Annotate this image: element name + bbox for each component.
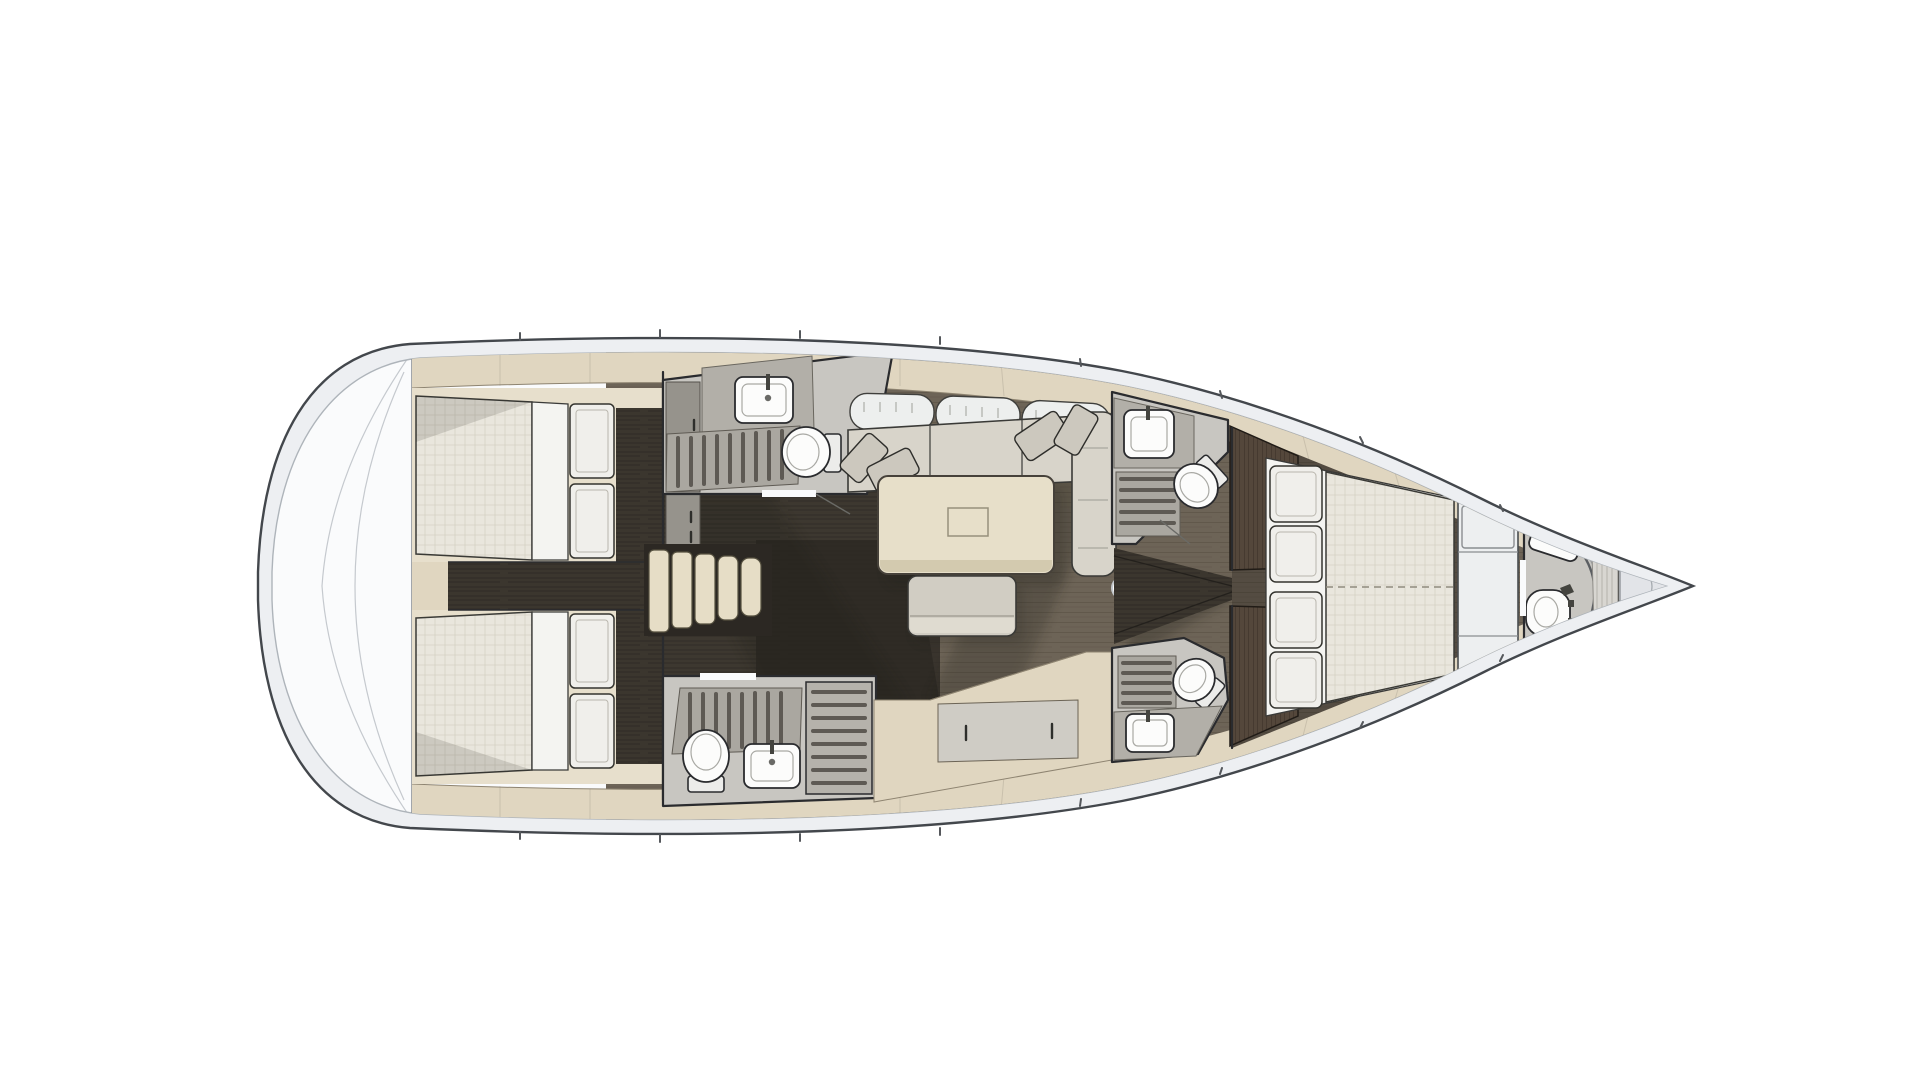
toilet-icon xyxy=(782,427,841,477)
island-bed xyxy=(1266,458,1454,716)
aft-cabin-port xyxy=(412,372,663,562)
bed-pillow-icon xyxy=(570,404,614,478)
yacht-floor-plan-page xyxy=(0,0,1920,1080)
door-opening xyxy=(762,490,816,497)
corridor-end-trim xyxy=(412,562,448,610)
bed-pillow-icon xyxy=(570,484,614,558)
duvet xyxy=(532,402,568,560)
bed-pillow-icon xyxy=(570,694,614,768)
bed-pillow-icon xyxy=(570,614,614,688)
sink-icon xyxy=(1124,406,1174,458)
shower-stall-icon xyxy=(806,682,872,794)
shower-grate-icon xyxy=(666,426,800,492)
corridor-locker xyxy=(666,494,700,552)
ottoman-icon xyxy=(908,576,1024,644)
shower-grate-icon xyxy=(1118,656,1176,708)
duvet xyxy=(532,612,568,770)
sink-icon xyxy=(1126,710,1174,752)
toilet-icon xyxy=(683,730,729,792)
door-opening xyxy=(1520,560,1526,616)
aft-corridor xyxy=(448,562,663,610)
sink-icon xyxy=(744,740,800,788)
cabin-floor-strip xyxy=(616,408,663,562)
faucet-icon xyxy=(766,374,770,390)
door-opening xyxy=(700,673,756,680)
floor-plan-svg xyxy=(0,0,1920,1080)
aft-cabin-starboard xyxy=(412,610,663,800)
bench-panel xyxy=(938,700,1078,762)
aft-head-starboard xyxy=(663,673,876,806)
shower-grate-icon xyxy=(1116,472,1180,536)
stairs-icon xyxy=(644,544,772,636)
table-icon xyxy=(878,476,1064,586)
